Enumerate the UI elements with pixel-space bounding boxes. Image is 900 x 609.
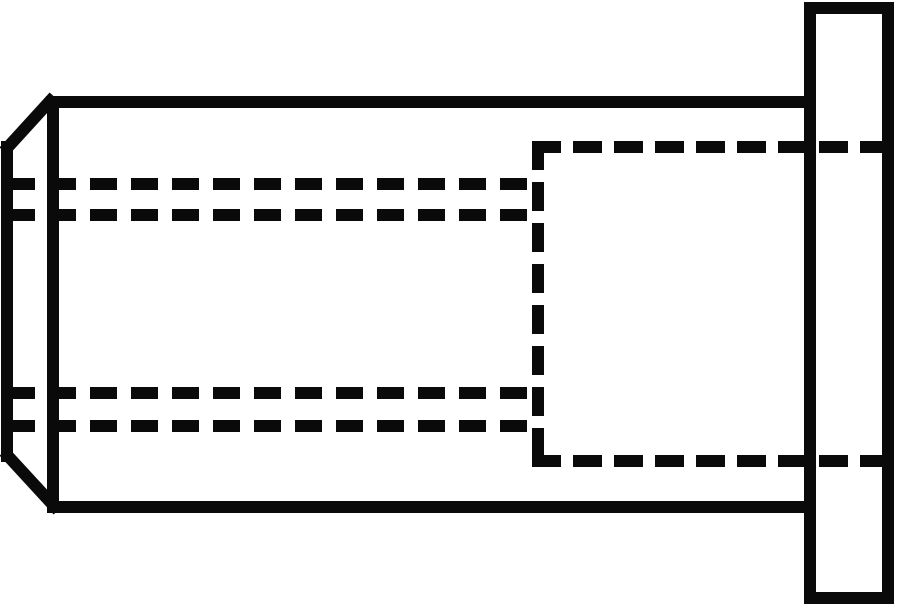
drawing-canvas <box>0 0 900 609</box>
closed-end-chamfer-top-edge <box>8 101 50 147</box>
flange-outline <box>810 8 888 598</box>
rivet-nut-technical-drawing <box>0 0 900 609</box>
